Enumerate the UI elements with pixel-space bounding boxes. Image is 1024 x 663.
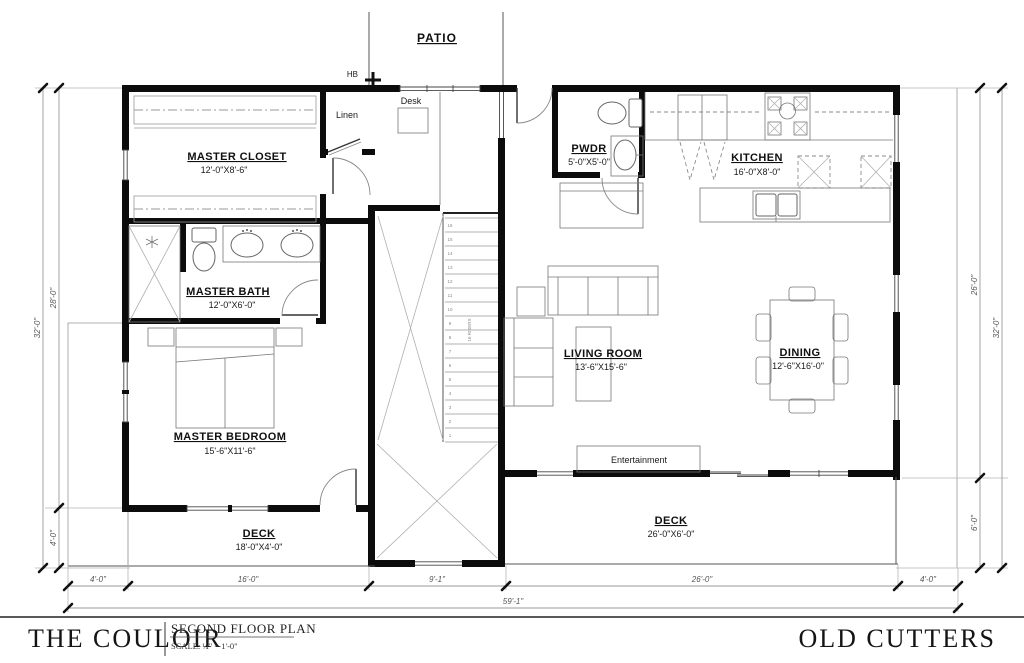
dim-left-upper: 28'-0"	[49, 287, 58, 310]
desk-label: Desk	[401, 96, 422, 106]
floor-plan-drawing: PATIO HB	[0, 0, 1024, 663]
label-living-room: LIVING ROOM	[564, 348, 642, 360]
floor-plan-sheet: PATIO HB	[0, 0, 1024, 663]
toilet	[192, 228, 216, 271]
sheet-scale: SCALE: ¼" = 1'-0"	[171, 641, 238, 651]
label-pwdr: PWDR	[571, 143, 606, 155]
label-kitchen: KITCHEN	[731, 152, 783, 164]
label-dining: DINING	[780, 347, 821, 359]
svg-text:7: 7	[449, 349, 452, 354]
dims-deck-left: 18'-0"X4'-0"	[236, 542, 283, 552]
svg-text:11: 11	[448, 293, 453, 298]
svg-text:6: 6	[449, 363, 452, 368]
range	[765, 93, 810, 140]
dim-bottom-1: 4'-0"	[90, 575, 107, 584]
dims-master-bedroom: 15'-6"X11'-6"	[204, 446, 255, 456]
svg-text:9: 9	[449, 321, 452, 326]
refrigerator	[678, 95, 727, 180]
dims-master-closet: 12'-0"X8'-6"	[201, 165, 248, 175]
entertainment-label: Entertainment	[611, 455, 668, 465]
dishwasher	[798, 156, 830, 188]
development-title: OLD CUTTERS	[799, 624, 997, 653]
dim-left-outer: 32'-0"	[33, 317, 42, 339]
title-block: THE COULOIR SECOND FLOOR PLAN SCALE: ¼" …	[0, 617, 1024, 656]
svg-text:15: 15	[447, 237, 453, 242]
svg-text:3: 3	[449, 405, 452, 410]
svg-text:12: 12	[447, 279, 453, 284]
dims-dining: 12'-6"X16'-0"	[772, 361, 824, 371]
bedroom-deck-door	[320, 469, 356, 505]
dims-pwdr: 5'-0"X5'-0"	[568, 157, 610, 167]
patio-area: PATIO HB	[347, 12, 503, 87]
svg-text:13: 13	[447, 265, 453, 270]
svg-text:8: 8	[449, 335, 452, 340]
dim-left-lower: 4'-0"	[49, 529, 58, 546]
svg-text:16: 16	[447, 223, 453, 228]
svg-text:2: 2	[449, 419, 452, 424]
svg-text:1: 1	[449, 433, 452, 438]
sheet-title: SECOND FLOOR PLAN	[171, 621, 316, 636]
open-to-below	[377, 216, 497, 558]
dim-bottom-total: 59'-1"	[503, 597, 525, 606]
island	[700, 188, 890, 222]
double-vanity	[223, 226, 320, 262]
wall-oven	[861, 156, 891, 188]
hb-label: HB	[347, 70, 358, 79]
bedroom-furniture	[148, 328, 302, 428]
dim-bottom-4: 26'-0"	[691, 575, 714, 584]
dim-bottom-5: 4'-0"	[920, 575, 937, 584]
label-deck-left: DECK	[243, 528, 276, 540]
label-master-closet: MASTER CLOSET	[187, 151, 286, 163]
living-room-furniture	[504, 266, 658, 406]
svg-text:5: 5	[449, 377, 452, 382]
entry-door	[517, 88, 552, 123]
dims-kitchen: 16'-0"X8'-0"	[734, 167, 781, 177]
sliding-door	[710, 472, 768, 477]
dim-right-outer: 32'-0"	[992, 317, 1001, 339]
dims-living-room: 13'-6"X15'-6"	[575, 362, 627, 372]
dim-right-lower: 6'-0"	[970, 514, 979, 531]
svg-text:10: 10	[447, 307, 453, 312]
closet-door	[333, 158, 370, 195]
svg-text:14: 14	[447, 251, 453, 256]
svg-text:4: 4	[449, 391, 452, 396]
label-master-bedroom: MASTER BEDROOM	[174, 431, 287, 443]
stair-note: 16 RISERS	[467, 318, 472, 341]
entertainment-center: Entertainment	[577, 446, 700, 472]
desk-nook: Desk	[398, 92, 440, 205]
dim-bottom-3: 9'-1"	[429, 575, 446, 584]
bath-door	[282, 280, 318, 316]
linen-label: Linen	[336, 110, 358, 120]
label-master-bath: MASTER BATH	[186, 286, 270, 298]
dims-master-bath: 12'-0"X6'-0"	[209, 300, 256, 310]
staircase: 16 15 14 13 12 11 10 9 8 7 6 5 4 3 2 1 1…	[377, 213, 498, 558]
hall-pantry	[560, 183, 643, 228]
dim-right-upper: 26'-0"	[970, 274, 979, 297]
dims-deck-right: 26'-0"X6'-0"	[648, 529, 695, 539]
label-deck-right: DECK	[655, 515, 688, 527]
decks	[68, 477, 898, 566]
dim-bottom-2: 16'-0"	[238, 575, 260, 584]
stair-tread-numbers: 16 15 14 13 12 11 10 9 8 7 6 5 4 3 2 1	[447, 223, 453, 438]
patio-label: PATIO	[417, 31, 457, 45]
hose-bib-icon	[365, 72, 381, 87]
shower	[129, 226, 180, 322]
linen-door	[328, 139, 361, 155]
